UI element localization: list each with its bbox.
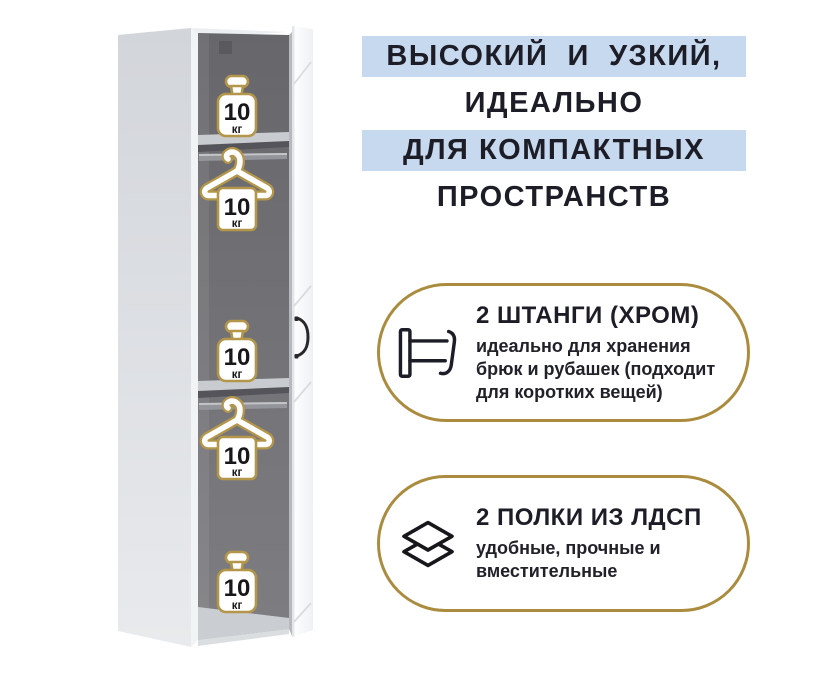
headline-line-2: ИДЕАЛЬНО: [362, 83, 746, 124]
feature-text-rails: 2 ШТАНГИ (ХРОМ) идеально для хранения бр…: [476, 302, 747, 404]
wardrobe-illustration: 10 кг 10 кг 10 кг 10 кг 10 кг: [0, 0, 340, 700]
cabinet-side-panel: [118, 28, 191, 647]
svg-text:кг: кг: [232, 369, 243, 381]
feature-description-line: удобные, прочные и: [476, 537, 717, 560]
svg-text:10: 10: [224, 99, 251, 126]
feature-description-line: для коротких вещей): [476, 381, 717, 404]
cabinet-front-edge: [191, 28, 198, 647]
svg-text:10: 10: [224, 443, 251, 470]
feature-badge-rails: 2 ШТАНГИ (ХРОМ) идеально для хранения бр…: [377, 283, 750, 422]
clothes-rail-icon: [380, 326, 476, 380]
svg-text:кг: кг: [232, 218, 243, 230]
svg-text:10: 10: [224, 194, 251, 221]
feature-badge-shelves: 2 ПОЛКИ ИЗ ЛДСП удобные, прочные и вмест…: [377, 475, 750, 612]
product-infographic: 10 кг 10 кг 10 кг 10 кг 10 кг: [0, 0, 816, 700]
feature-text-shelves: 2 ПОЛКИ ИЗ ЛДСП удобные, прочные и вмест…: [476, 504, 747, 583]
feature-description: удобные, прочные и вместительные: [476, 537, 717, 583]
svg-text:кг: кг: [232, 600, 243, 612]
feature-description-line: идеально для хранения: [476, 335, 717, 358]
interior-top-detail: [219, 41, 232, 54]
svg-text:кг: кг: [232, 124, 243, 136]
door-left-shade: [292, 26, 295, 637]
headline-line-1: ВЫСОКИЙ И УЗКИЙ,: [362, 36, 746, 77]
headline-line-3: ДЛЯ КОМПАКТНЫХ: [362, 130, 746, 171]
feature-description: идеально для хранения брюк и рубашек (по…: [476, 335, 717, 404]
feature-description-line: вместительные: [476, 560, 717, 583]
svg-text:10: 10: [224, 575, 251, 602]
headline-line-4: ПРОСТРАНСТВ: [362, 177, 746, 218]
carcass-right-edge: [289, 32, 292, 636]
svg-text:10: 10: [224, 344, 251, 371]
feature-description-line: брюк и рубашек (подходит: [476, 358, 717, 381]
feature-title: 2 ШТАНГИ (ХРОМ): [476, 302, 717, 330]
feature-title: 2 ПОЛКИ ИЗ ЛДСП: [476, 504, 717, 532]
interior-left-wall: [198, 33, 209, 640]
headline: ВЫСОКИЙ И УЗКИЙ, ИДЕАЛЬНО ДЛЯ КОМПАКТНЫХ…: [362, 36, 746, 224]
svg-text:кг: кг: [232, 467, 243, 479]
open-door: [292, 26, 313, 637]
shelves-icon: [380, 519, 476, 569]
wardrobe-cabinet: [118, 26, 313, 647]
